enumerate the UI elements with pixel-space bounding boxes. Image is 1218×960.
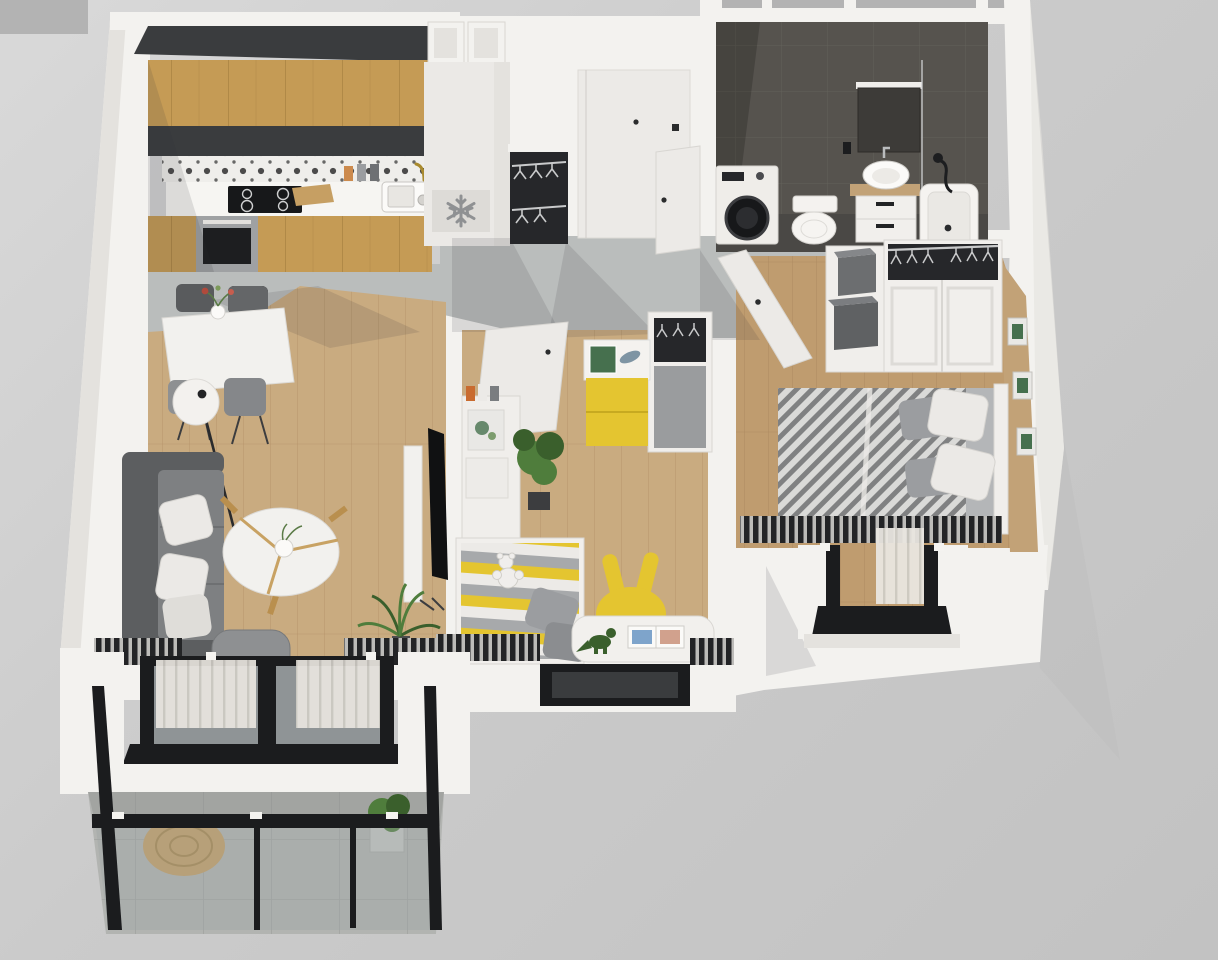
railing-post bbox=[350, 822, 356, 928]
bay-threshold bbox=[812, 606, 952, 636]
pillow-white bbox=[926, 387, 989, 442]
tile-backsplash bbox=[162, 156, 432, 182]
bathroom-door-handle bbox=[661, 197, 666, 202]
frame-clip bbox=[934, 543, 944, 551]
flower bbox=[215, 285, 220, 290]
sheer-curtain bbox=[296, 660, 380, 728]
plant-foliage bbox=[536, 432, 564, 460]
mirror bbox=[858, 88, 920, 152]
balcony-threshold bbox=[122, 744, 412, 766]
background-corner-block bbox=[0, 0, 88, 34]
sheer-curtain bbox=[876, 528, 924, 604]
headboard bbox=[994, 384, 1008, 534]
induction-hob bbox=[228, 186, 302, 213]
print-art bbox=[1012, 324, 1023, 339]
tub-drain bbox=[945, 225, 952, 232]
hall-wardrobe-top bbox=[508, 144, 570, 152]
tall-cabinet-inner bbox=[474, 28, 498, 58]
kids-door-handle bbox=[545, 349, 550, 354]
shower-head bbox=[933, 153, 943, 163]
oven-handle bbox=[203, 220, 251, 224]
bedroom-french-balcony bbox=[798, 528, 968, 648]
lamp-top bbox=[198, 390, 207, 399]
sheer-curtain bbox=[156, 660, 256, 728]
washer-drum bbox=[736, 207, 758, 229]
media-panel bbox=[404, 446, 422, 602]
wall-cap-segment bbox=[722, 0, 762, 8]
tall-cabinet-inner bbox=[434, 28, 457, 58]
picture-book-art bbox=[488, 432, 496, 440]
peephole bbox=[633, 119, 638, 124]
sofa-back bbox=[122, 460, 162, 646]
storage-box bbox=[834, 302, 878, 350]
rail-clip bbox=[250, 812, 262, 819]
hall-bathroom-divider bbox=[698, 18, 716, 240]
bedroom-radiator bbox=[740, 516, 1002, 543]
bay-outer-sill bbox=[804, 634, 960, 648]
washer-knob bbox=[756, 172, 764, 180]
under-cabinet-band bbox=[148, 126, 432, 156]
railing-post bbox=[254, 822, 260, 930]
toilet-bowl bbox=[792, 212, 836, 244]
toilet-tank bbox=[793, 196, 837, 212]
green-book bbox=[590, 346, 616, 373]
drawer-handle bbox=[876, 202, 894, 206]
book bbox=[478, 384, 487, 401]
oven-window bbox=[203, 228, 251, 264]
balcony-sill-wall bbox=[118, 764, 412, 794]
balcony-left-pillar bbox=[60, 652, 124, 794]
kitchen bbox=[134, 26, 434, 272]
picture-book-art bbox=[475, 421, 489, 435]
kids-window-glass bbox=[552, 672, 678, 698]
washer-panel bbox=[722, 172, 744, 181]
flower bbox=[202, 288, 209, 295]
print-art bbox=[1021, 434, 1032, 449]
print-art bbox=[1017, 378, 1028, 393]
bay-frame-left bbox=[826, 545, 840, 613]
bedroom-door-handle bbox=[755, 299, 761, 305]
table-vase bbox=[275, 539, 293, 557]
floor-plan-stage bbox=[0, 0, 1218, 960]
storage-bin bbox=[466, 458, 508, 498]
flower-vase bbox=[211, 305, 225, 319]
spice-jar bbox=[344, 166, 353, 181]
lamp-globe bbox=[173, 379, 219, 425]
flush-plate bbox=[843, 142, 851, 154]
wall-cap-segment bbox=[772, 0, 844, 8]
plant-pot bbox=[528, 492, 550, 510]
book bbox=[466, 386, 475, 401]
drawer-handle bbox=[876, 224, 894, 228]
plant-foliage bbox=[531, 459, 557, 485]
upper-cabinets bbox=[148, 60, 432, 128]
plant-foliage bbox=[513, 429, 535, 451]
wall-cap-segment bbox=[856, 0, 976, 8]
balcony bbox=[60, 652, 470, 934]
flower bbox=[228, 289, 234, 295]
frame-clip bbox=[206, 652, 216, 660]
door-lock bbox=[672, 124, 679, 131]
sink-basin bbox=[388, 186, 414, 207]
kids-radiator bbox=[690, 638, 734, 665]
railing-glass bbox=[96, 828, 440, 930]
kitchen-soffit bbox=[134, 26, 432, 62]
book bbox=[490, 386, 499, 401]
rail-clip bbox=[112, 812, 124, 819]
frame-clip bbox=[366, 652, 376, 660]
sofa-pillow bbox=[161, 593, 212, 641]
frame-clip bbox=[820, 543, 830, 551]
closet-lower-panel bbox=[654, 366, 706, 448]
fridge-side-shade bbox=[494, 62, 510, 246]
bay-frame-right bbox=[924, 545, 938, 613]
sofa bbox=[122, 452, 224, 660]
storage-box bbox=[838, 254, 876, 296]
rail-clip bbox=[386, 812, 398, 819]
dining-chair bbox=[224, 378, 266, 416]
vessel-sink-basin bbox=[872, 168, 900, 184]
spice-jar bbox=[370, 164, 379, 181]
floor-plan-scene bbox=[0, 0, 1218, 960]
spice-jar bbox=[357, 164, 366, 181]
dining-chair bbox=[176, 284, 214, 312]
picture-book-open bbox=[628, 626, 684, 648]
